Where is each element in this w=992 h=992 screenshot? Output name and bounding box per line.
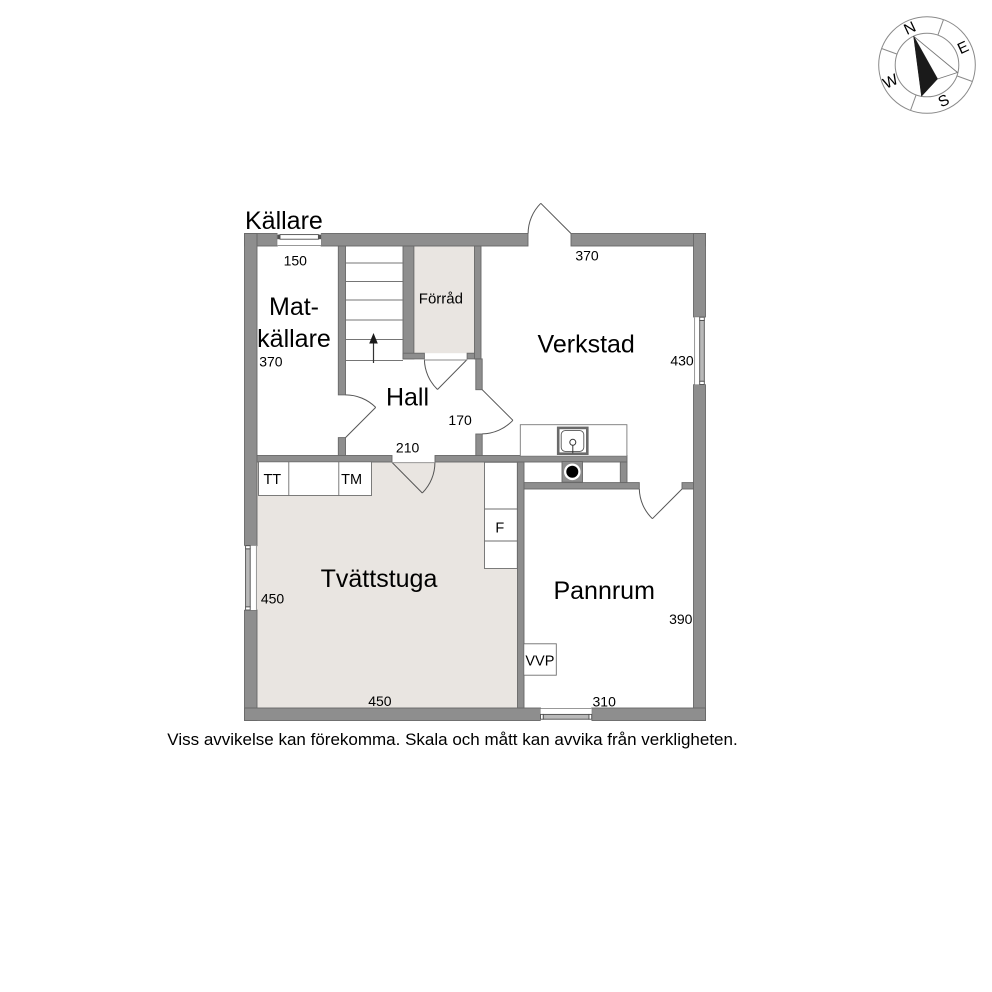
svg-text:F: F [495, 521, 504, 537]
svg-text:390: 390 [669, 611, 693, 627]
svg-text:Hall: Hall [386, 384, 429, 412]
svg-text:VVP: VVP [525, 654, 554, 670]
svg-text:Källare: Källare [245, 207, 323, 235]
svg-text:430: 430 [670, 352, 694, 368]
svg-text:370: 370 [259, 354, 283, 370]
svg-text:källare: källare [257, 325, 331, 353]
svg-text:210: 210 [396, 440, 420, 456]
svg-text:310: 310 [593, 694, 617, 710]
svg-text:Förråd: Förråd [419, 291, 463, 308]
svg-text:Viss avvikelse kan förekomma.: Viss avvikelse kan förekomma. Skala och … [167, 730, 737, 749]
svg-text:450: 450 [261, 590, 285, 606]
svg-text:450: 450 [368, 693, 392, 709]
svg-text:150: 150 [284, 252, 308, 268]
svg-text:170: 170 [448, 412, 472, 428]
svg-text:370: 370 [575, 248, 599, 264]
svg-text:TM: TM [341, 472, 362, 488]
svg-text:Pannrum: Pannrum [553, 577, 654, 605]
svg-text:Verkstad: Verkstad [538, 331, 635, 359]
svg-text:TT: TT [263, 472, 281, 488]
svg-text:Tvättstuga: Tvättstuga [321, 565, 438, 593]
svg-text:Mat-: Mat- [269, 293, 319, 321]
